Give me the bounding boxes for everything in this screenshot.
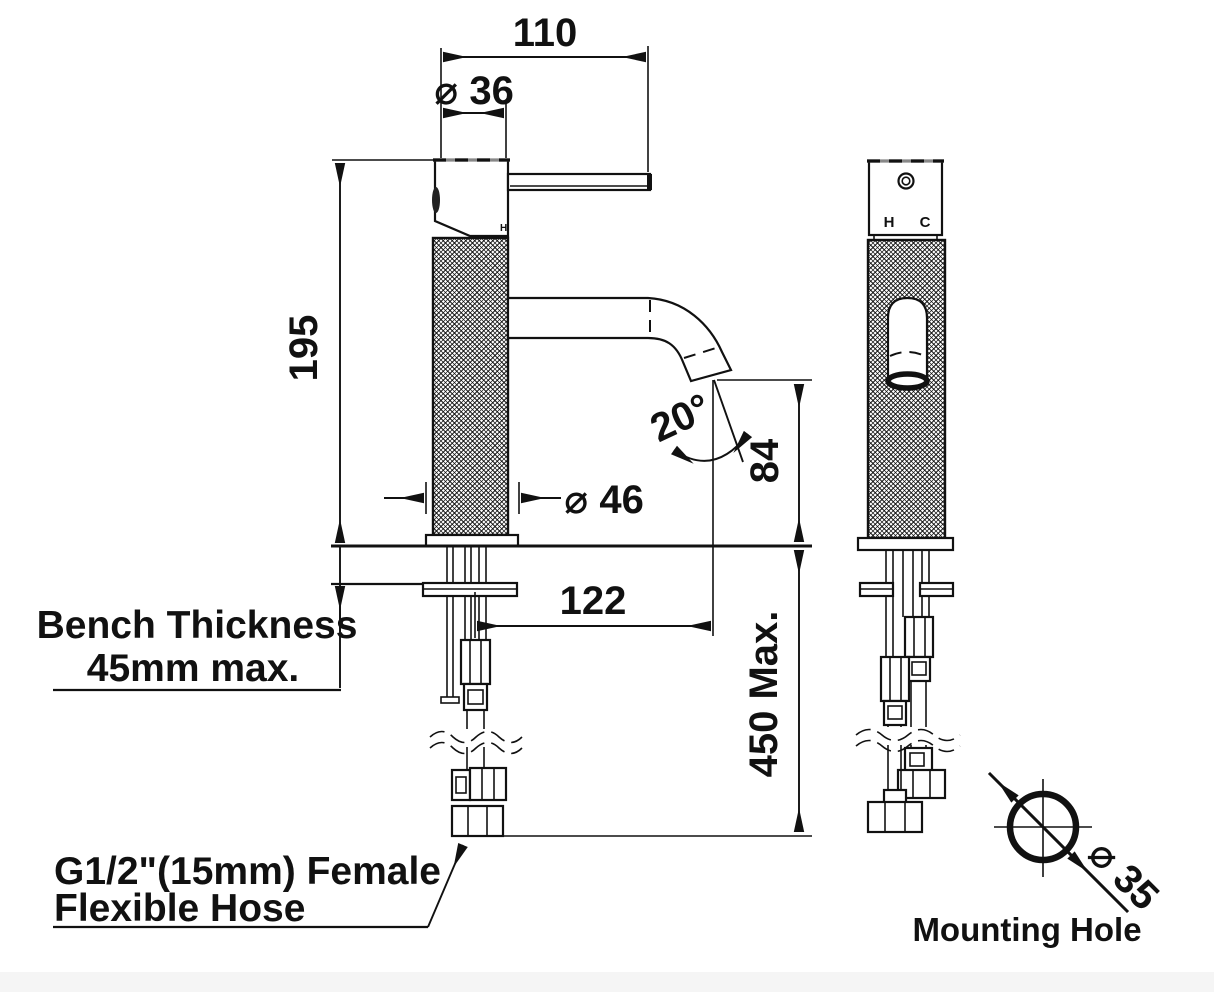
hose-hex-fitting (461, 640, 490, 684)
cold-marker: C (920, 214, 931, 231)
mounting-hole-caption: Mounting Hole (912, 911, 1141, 948)
side-hex-fitting-left (881, 657, 909, 701)
dimension-450max: 450 Max. (492, 550, 812, 836)
dim-36-label: ⌀ 36 (434, 69, 514, 113)
side-set-screw (432, 187, 440, 213)
drawing-canvas: H (0, 0, 1214, 992)
dimension-84: 84 (717, 380, 812, 542)
front-handle-head (435, 160, 508, 236)
threaded-rod-end (441, 697, 459, 703)
tap-dimension-drawing: H (0, 0, 1214, 992)
dimension-dia46: ⌀ 46 (384, 478, 644, 522)
handle-hot-marker: H (500, 223, 507, 234)
hose-hex-nut (452, 806, 503, 836)
dim-46-label: ⌀ 46 (564, 478, 644, 522)
dim-35-label: ⌀ 35 (1080, 831, 1167, 918)
spout-outlet-ring (888, 374, 927, 388)
dim-84-label: 84 (743, 438, 787, 483)
side-spout-projection (888, 298, 927, 388)
dimension-195: 195 (282, 160, 446, 543)
bench-thickness-note: Bench Thickness 45mm max. (37, 547, 358, 690)
handle-lever (508, 174, 652, 190)
hot-marker: H (884, 214, 895, 231)
elbow-body (452, 770, 470, 800)
page-bottom-strip (0, 972, 1214, 992)
dim-450-label: 450 Max. (742, 611, 786, 778)
front-spout (508, 298, 731, 381)
front-base-plate (426, 535, 518, 546)
dimension-20deg: 20° (644, 380, 748, 636)
elbow-side-hex (470, 768, 506, 800)
side-hex-fitting-right (905, 617, 933, 657)
spout-outline (508, 298, 731, 381)
dim-122-label: 122 (560, 579, 627, 623)
bench-note-line2: 45mm max. (87, 647, 299, 690)
side-hex-nut (868, 802, 922, 832)
dim-110-label: 110 (513, 11, 578, 55)
side-handle-head (869, 161, 942, 235)
side-base-plate (858, 538, 953, 550)
hose-note: G1/2"(15mm) Female Flexible Hose (53, 845, 463, 930)
dimension-dia36: ⌀ 36 (434, 69, 514, 158)
lever-end-cap (647, 174, 652, 190)
hose-note-line2: Flexible Hose (54, 887, 305, 930)
side-view: H C (856, 161, 960, 832)
front-knurled-body (433, 238, 508, 535)
dim-20deg-label: 20° (644, 385, 717, 450)
lever-bar (508, 174, 650, 190)
front-under-bench (423, 546, 522, 836)
bench-note-line1: Bench Thickness (37, 604, 358, 647)
side-under-bench (856, 550, 960, 832)
dim-195-label: 195 (282, 315, 326, 382)
mounting-hole-detail: ⌀ 35 Mounting Hole (912, 773, 1167, 948)
